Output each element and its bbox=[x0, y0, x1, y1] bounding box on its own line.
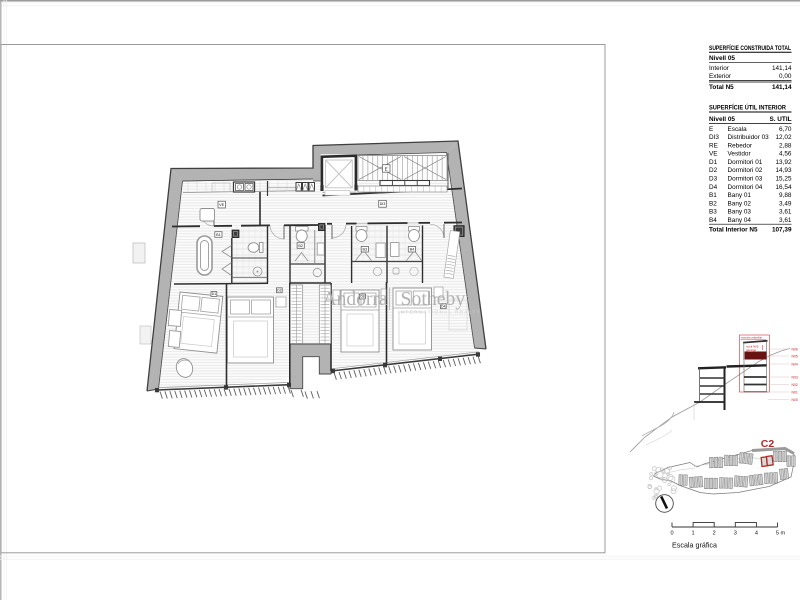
svg-text:2: 2 bbox=[713, 531, 716, 537]
svg-text:B3: B3 bbox=[709, 209, 717, 216]
svg-text:Sotheby’s: Sotheby’s bbox=[401, 288, 479, 310]
svg-text:Escala gráfica: Escala gráfica bbox=[672, 541, 718, 550]
svg-text:garatge: garatge bbox=[746, 348, 757, 352]
svg-text:3,49: 3,49 bbox=[779, 200, 792, 207]
svg-text:D2: D2 bbox=[277, 289, 281, 293]
svg-text:N04: N04 bbox=[792, 362, 798, 366]
svg-text:INTERNATIONAL REALTY: INTERNATIONAL REALTY bbox=[398, 310, 481, 315]
svg-text:Nivell 05: Nivell 05 bbox=[709, 55, 735, 62]
svg-text:B4: B4 bbox=[709, 217, 717, 224]
svg-text:B1: B1 bbox=[216, 233, 221, 237]
svg-text:Distribuidor 03: Distribuidor 03 bbox=[728, 134, 770, 141]
svg-text:B2: B2 bbox=[298, 244, 303, 248]
svg-text:DI3: DI3 bbox=[709, 134, 719, 141]
svg-text:N06: N06 bbox=[792, 347, 798, 351]
svg-text:16,54: 16,54 bbox=[776, 184, 792, 191]
svg-text:D3: D3 bbox=[709, 176, 718, 183]
svg-text:5 m: 5 m bbox=[776, 531, 786, 537]
svg-text:141,14: 141,14 bbox=[772, 84, 792, 91]
svg-text:RE: RE bbox=[709, 142, 718, 149]
svg-text:Dormitori 01: Dormitori 01 bbox=[728, 159, 763, 166]
svg-text:3,61: 3,61 bbox=[779, 209, 792, 216]
svg-text:13,92: 13,92 bbox=[776, 159, 792, 166]
svg-text:N05: N05 bbox=[792, 354, 798, 358]
svg-text:B4: B4 bbox=[410, 248, 415, 252]
svg-text:B1: B1 bbox=[709, 192, 717, 199]
svg-text:Dormitori 02: Dormitori 02 bbox=[728, 167, 763, 174]
svg-text:4,56: 4,56 bbox=[779, 151, 792, 158]
svg-text:Bany 01: Bany 01 bbox=[728, 192, 752, 199]
svg-text:Bany 03: Bany 03 bbox=[728, 209, 752, 216]
svg-text:C2: C2 bbox=[761, 438, 775, 450]
svg-text:Bany 04: Bany 04 bbox=[728, 217, 752, 224]
svg-text:Dormitori 04: Dormitori 04 bbox=[728, 184, 763, 191]
svg-text:Andorra: Andorra bbox=[323, 288, 388, 310]
svg-text:Rebedor: Rebedor bbox=[728, 142, 753, 149]
svg-text:Total Interior N5: Total Interior N5 bbox=[709, 226, 758, 233]
svg-text:DI3: DI3 bbox=[380, 202, 386, 206]
svg-text:3: 3 bbox=[734, 531, 737, 537]
svg-text:6,70: 6,70 bbox=[779, 126, 792, 133]
svg-text:N01: N01 bbox=[792, 390, 798, 394]
svg-text:0: 0 bbox=[670, 531, 673, 537]
svg-text:Vestidor: Vestidor bbox=[728, 151, 752, 158]
svg-text:N02: N02 bbox=[792, 383, 798, 387]
svg-text:Escala: Escala bbox=[728, 126, 748, 133]
svg-text:S. UTIL: S. UTIL bbox=[769, 116, 791, 123]
svg-text:B3: B3 bbox=[362, 248, 367, 252]
svg-text:15,25: 15,25 bbox=[776, 176, 792, 183]
svg-text:SUPERFÍCIE ÚTIL INTERIOR: SUPERFÍCIE ÚTIL INTERIOR bbox=[709, 103, 786, 112]
svg-text:E: E bbox=[385, 167, 388, 172]
svg-text:VE: VE bbox=[219, 202, 225, 207]
svg-text:141,14: 141,14 bbox=[772, 65, 792, 72]
svg-text:vivenda unifamiliar: vivenda unifamiliar bbox=[741, 336, 762, 340]
svg-text:1: 1 bbox=[692, 531, 695, 537]
svg-text:Nivell 05: Nivell 05 bbox=[709, 116, 735, 123]
svg-text:Dormitori 03: Dormitori 03 bbox=[728, 176, 763, 183]
svg-text:9,88: 9,88 bbox=[779, 192, 792, 199]
svg-text:N03: N03 bbox=[792, 375, 798, 379]
svg-text:D4: D4 bbox=[709, 184, 718, 191]
svg-text:14,93: 14,93 bbox=[776, 167, 792, 174]
svg-text:E: E bbox=[709, 126, 713, 133]
svg-text:107,39: 107,39 bbox=[772, 226, 792, 233]
svg-text:VE: VE bbox=[709, 151, 718, 158]
svg-text:D1: D1 bbox=[709, 159, 718, 166]
svg-text:D1: D1 bbox=[212, 292, 216, 296]
svg-text:Interior: Interior bbox=[709, 65, 730, 72]
svg-text:D2: D2 bbox=[709, 167, 718, 174]
svg-text:0,00: 0,00 bbox=[779, 73, 792, 80]
svg-text:12,02: 12,02 bbox=[776, 134, 792, 141]
svg-text:3,61: 3,61 bbox=[779, 217, 792, 224]
svg-text:4: 4 bbox=[755, 531, 758, 537]
svg-text:2,88: 2,88 bbox=[779, 142, 792, 149]
svg-text:B2: B2 bbox=[709, 200, 717, 207]
svg-text:Total N5: Total N5 bbox=[709, 84, 734, 91]
svg-text:Bany 02: Bany 02 bbox=[728, 200, 752, 207]
svg-text:N00: N00 bbox=[792, 398, 798, 402]
svg-text:SUPERFÍCIE CONSTRUIDA TOTAL: SUPERFÍCIE CONSTRUIDA TOTAL bbox=[709, 43, 791, 52]
svg-text:Exterior: Exterior bbox=[709, 73, 732, 80]
